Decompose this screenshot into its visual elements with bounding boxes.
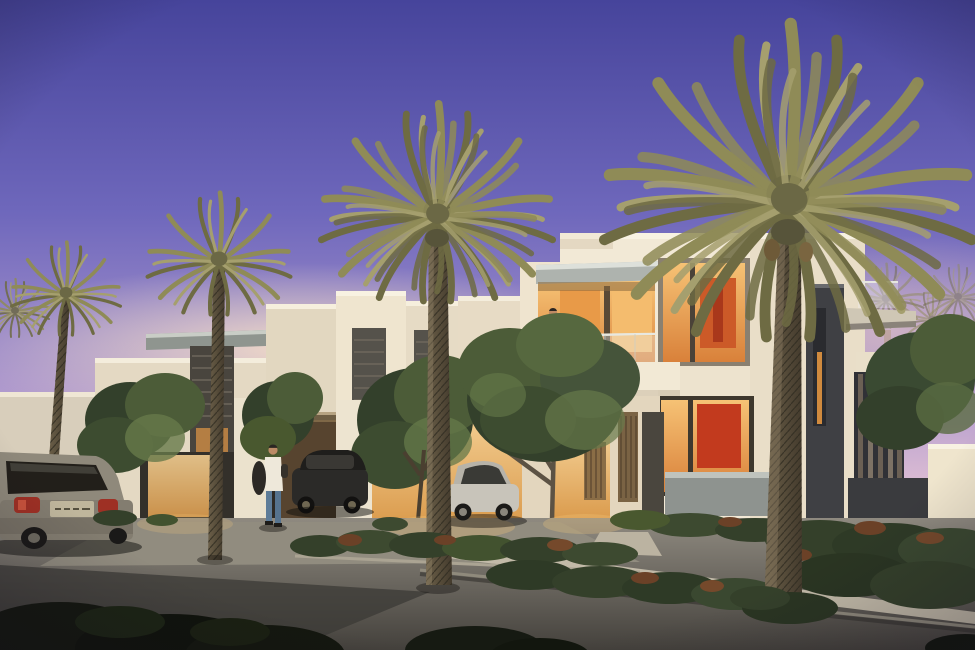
vignette-overlay (0, 0, 975, 650)
scene-svg (0, 0, 975, 650)
rendering-canvas (0, 0, 975, 650)
